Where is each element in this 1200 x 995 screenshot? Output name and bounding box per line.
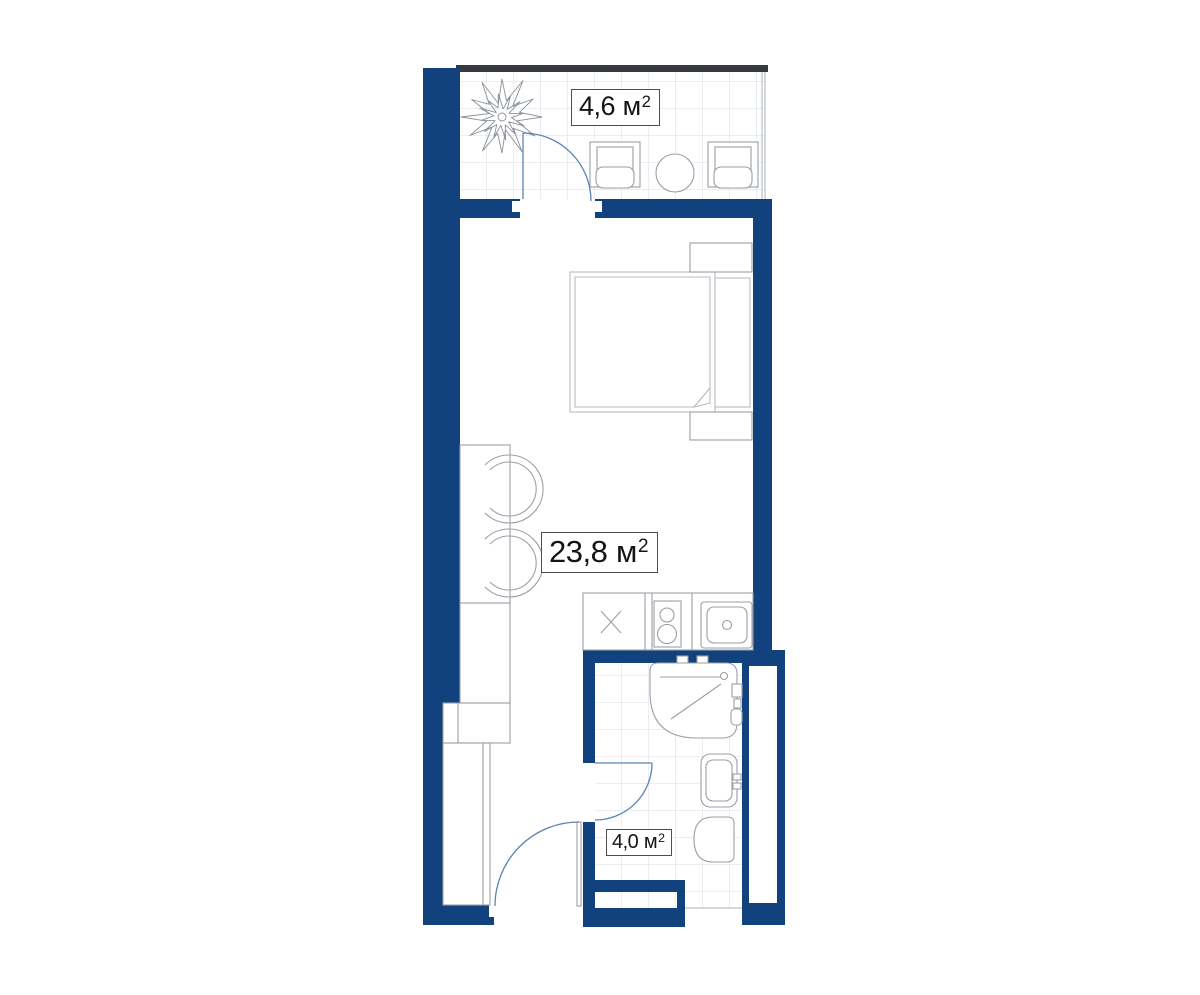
nightstand-top-icon xyxy=(690,243,752,272)
area-value: 4,0 xyxy=(612,832,638,852)
toilet-icon xyxy=(694,817,734,862)
wall-bottom-left xyxy=(423,905,494,925)
entrance-door xyxy=(495,822,581,906)
east-shaft-inner xyxy=(749,666,777,903)
area-exponent: 2 xyxy=(658,832,664,844)
bed-icon xyxy=(570,272,750,412)
studio-room-area-label: 23,8м2 xyxy=(541,532,658,573)
duct-shaft-top xyxy=(593,880,677,892)
nightstand-bottom-icon xyxy=(690,412,752,440)
shower-icon xyxy=(650,656,742,738)
area-unit: м xyxy=(616,536,637,567)
kitchen-counter xyxy=(583,593,753,650)
kitchen-sink-icon xyxy=(701,602,752,648)
wall-balcony-right xyxy=(595,199,772,218)
balcony-chair-right-icon xyxy=(708,142,758,188)
balcony-glazing-band xyxy=(456,65,768,72)
wall-right xyxy=(753,199,772,652)
bathroom-area-label: 4,0м2 xyxy=(606,829,672,856)
balcony-round-table-icon xyxy=(656,154,694,192)
bathroom-sink-icon xyxy=(701,754,741,807)
floor-plan-canvas: 4,6м2 23,8м2 4,0м2 xyxy=(0,0,1200,995)
duct-shaft-bottom xyxy=(583,908,685,927)
door-jamb-notch xyxy=(489,905,497,917)
wall-bath-west-upper xyxy=(583,650,595,763)
wardrobe-icon xyxy=(443,743,490,905)
stove-icon xyxy=(654,601,681,647)
balcony-chair-left-icon xyxy=(590,142,640,188)
area-value: 23,8 xyxy=(549,536,607,567)
area-unit: м xyxy=(623,93,641,120)
wall-bath-north xyxy=(583,650,753,663)
floor-plan-drawing xyxy=(0,0,1200,995)
area-unit: м xyxy=(644,832,657,852)
area-exponent: 2 xyxy=(638,537,648,556)
area-value: 4,6 xyxy=(579,93,615,120)
door-jamb-notch xyxy=(512,201,520,212)
door-jamb-notch xyxy=(595,201,602,212)
wall-left-lower xyxy=(423,707,443,925)
area-exponent: 2 xyxy=(642,94,651,111)
wall-balcony-left xyxy=(423,199,520,218)
balcony-area-label: 4,6м2 xyxy=(571,89,660,126)
wall-left-upper xyxy=(423,68,460,707)
